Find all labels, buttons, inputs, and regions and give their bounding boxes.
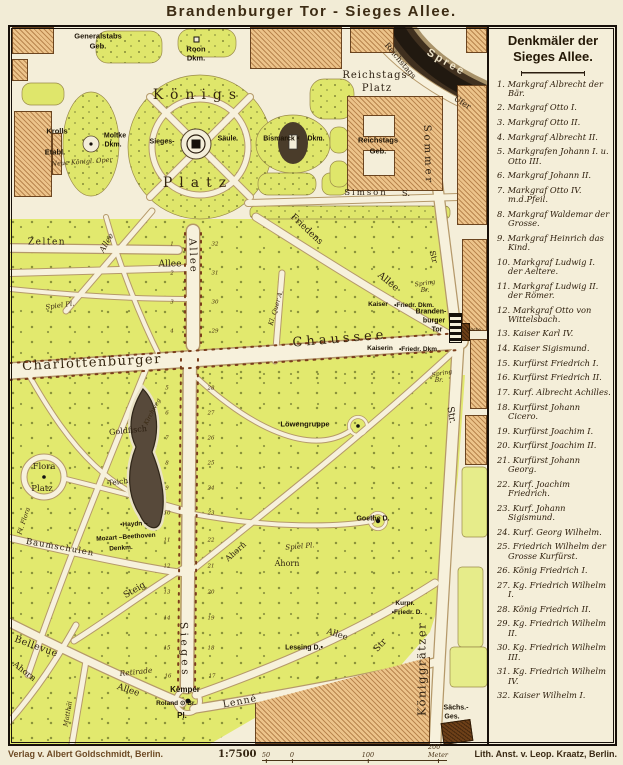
legend-item: 3. Markgraf Otto II. — [497, 118, 611, 127]
legend-panel: Denkmäler der Sieges Allee. 1. Markgraf … — [489, 27, 615, 744]
legend-divider — [521, 71, 585, 76]
map-label: Königgrätzer — [416, 622, 428, 716]
legend-item: 9. Markgraf Heinrich das Kind. — [497, 234, 611, 253]
legend-item: 4. Markgraf Albrecht II. — [497, 133, 611, 142]
publisher-credit: Verlag v. Albert Goldschmidt, Berlin. — [8, 749, 163, 759]
flora-platz-marker — [42, 475, 46, 479]
bismarck-monument-symbol — [278, 122, 308, 164]
monument-number: 8 — [165, 461, 169, 467]
legend-item: 13. Kaiser Karl IV. — [497, 329, 611, 338]
map-label: Kurpr. — [395, 601, 414, 608]
monument-number: 28 — [208, 386, 215, 392]
map-label: Platz — [31, 485, 52, 494]
monument-number: 19 — [208, 616, 215, 622]
map-label: Lessing D.• — [285, 645, 323, 652]
monument-number: 12 — [164, 564, 171, 570]
monument-number: 32 — [212, 242, 219, 248]
map-label: Reichstags — [358, 136, 398, 144]
general-staff-building — [12, 27, 54, 54]
map-label: Kaiserin — [367, 346, 393, 353]
legend-item: 7. Markgraf Otto IV. m.d.Pfeil. — [497, 186, 611, 205]
saxon-legation-building — [441, 719, 474, 744]
map-label: Pl. — [177, 712, 187, 720]
legend-item: 20. Kurfürst Joachim II. — [497, 441, 611, 450]
legend-item: 24. Kurf. Georg Wilhelm. — [497, 528, 611, 537]
monument-number: 11 — [164, 538, 171, 544]
general-staff-annex — [12, 59, 28, 81]
map-label: Sächs.- — [444, 705, 469, 712]
monument-number: 4 — [170, 329, 174, 335]
map-label: Moltke — [104, 133, 126, 140]
monument-number: 14 — [164, 616, 171, 622]
map-label: Allee — [159, 261, 182, 270]
legend-item: 12. Markgraf Otto von Wittelsbach. — [497, 306, 611, 325]
north-block-west — [250, 27, 342, 69]
monument-number: 7 — [165, 436, 169, 442]
map-label: Sieges — [178, 622, 190, 678]
map-label: × — [296, 136, 300, 142]
monument-number: 27 — [208, 411, 215, 417]
victory-column-symbol — [181, 129, 211, 159]
legend-item: 21. Kurfürst Johann Georg. — [497, 456, 611, 475]
legend-item: 1. Markgraf Albrecht der Bär. — [497, 80, 611, 99]
map-label: Löwengruppe — [280, 420, 329, 428]
map-label: Königs — [153, 88, 243, 102]
map-label: Sieges- — [150, 139, 175, 146]
map-label: Etabl. — [45, 148, 65, 156]
monument-number: 23 — [208, 511, 215, 517]
east-bank-block-2 — [462, 239, 487, 331]
map-footer: Verlag v. Albert Goldschmidt, Berlin. 1:… — [0, 745, 623, 765]
monument-number: 16 — [165, 674, 172, 680]
map-label: Platz — [163, 176, 233, 190]
monument-number: 10 — [164, 511, 171, 517]
monument-number: 6 — [165, 411, 169, 417]
legend-item: 14. Kaiser Sigismund. — [497, 344, 611, 353]
scale-tick: 50 — [262, 751, 270, 759]
monument-number: 25 — [208, 461, 215, 467]
east-block-south — [465, 415, 487, 465]
map-label: Simson — [344, 189, 388, 198]
legend-title: Denkmäler der Sieges Allee. — [495, 33, 611, 66]
legend-item: 32. Kaiser Wilhelm I. — [497, 691, 611, 700]
legend-item: 23. Kurf. Johann Sigismund. — [497, 504, 611, 523]
legend-item: 15. Kurfürst Friedrich I. — [497, 359, 611, 368]
monument-number: 30 — [212, 300, 219, 306]
map-label: Generalstabs — [74, 32, 122, 40]
monument-number: 17 — [209, 674, 216, 680]
map-label: Platz — [362, 84, 392, 94]
east-gate-block — [470, 339, 487, 409]
map-label: Krolls — [46, 127, 67, 135]
map-label: Bismarck — [263, 136, 295, 143]
map-label: Säule — [218, 136, 237, 143]
map-title: Brandenburger Tor - Sieges Allee. — [0, 3, 623, 20]
scale-bar: 500100200 Meter — [262, 749, 447, 761]
map-label: Geb. — [370, 147, 387, 155]
legend-item: 25. Friedrich Wilhelm der Grosse Kurfürs… — [497, 542, 611, 561]
map-label: Allee — [186, 238, 197, 274]
map-canvas: GeneralstabsGeb.RoonDkm.KönigsPlatzKroll… — [10, 27, 489, 744]
map-label: Zelten — [28, 239, 66, 248]
legend-item: 30. Kg. Friedrich Wilhelm III. — [497, 643, 611, 662]
monument-number: 21 — [208, 564, 215, 570]
map-label: S. — [402, 190, 410, 199]
legend-item: 11. Markgraf Ludwig II. der Römer. — [497, 282, 611, 301]
map-label: •Friedr. D. — [392, 610, 422, 617]
monument-number: 24 — [208, 486, 215, 492]
map-label: Kemper — [170, 686, 200, 694]
map-label: Str. — [445, 406, 457, 424]
legend-list: 1. Markgraf Albrecht der Bär.2. Markgraf… — [495, 80, 611, 701]
monument-number: 20 — [208, 590, 215, 596]
map-label: Dkm. — [187, 54, 205, 62]
map-label: Kaiser — [368, 302, 388, 309]
monument-number: 2 — [170, 271, 174, 277]
map-label: Dkm. — [307, 136, 324, 143]
monument-number: 31 — [212, 271, 219, 277]
map-label: Roland ⊙ Br. — [156, 701, 196, 708]
reichstag-courtyard-north — [363, 115, 395, 137]
map-label: Br. — [435, 378, 444, 384]
monument-number: 9 — [165, 486, 169, 492]
lion-group-marker — [356, 424, 360, 428]
legend-item: 5. Markgrafen Johann I. u. Otto III. — [497, 147, 611, 166]
legend-item: 6. Markgraf Johann II. — [497, 171, 611, 180]
legend-item: 8. Markgraf Waldemar der Grosse. — [497, 210, 611, 229]
monument-number: 29 — [212, 329, 219, 335]
monument-number: 18 — [208, 646, 215, 652]
legend-item: 28. König Friedrich II. — [497, 605, 611, 614]
brandenburg-gate-symbol — [449, 313, 462, 343]
map-label: Ahorn — [275, 560, 300, 568]
map-label: Br. — [421, 288, 430, 294]
map-label: Wache — [467, 328, 481, 333]
scale-tick: 0 — [290, 751, 294, 759]
monument-number: 5 — [165, 386, 169, 392]
lithographer-credit: Lith. Anst. v. Leop. Kraatz, Berlin. — [474, 749, 617, 759]
moltke-monument-symbol — [83, 136, 99, 152]
map-label: Dkm. — [104, 142, 121, 149]
map-label: Reichstags — [342, 71, 407, 81]
legend-item: 17. Kurf. Albrecht Achilles. — [497, 388, 611, 397]
map-label: Ges. — [444, 714, 459, 721]
roon-monument-marker — [194, 37, 199, 42]
map-label: Tor — [432, 327, 443, 334]
map-label: Goethe D. — [356, 516, 389, 523]
monument-number: 26 — [208, 436, 215, 442]
map-label: •Friedr. Dkm — [399, 347, 437, 354]
northeast-corner-block — [466, 27, 487, 53]
scale-tick: 100 — [362, 751, 374, 759]
legend-item: 29. Kg. Friedrich Wilhelm II. — [497, 619, 611, 638]
legend-item: 27. Kg. Friedrich Wilhelm I. — [497, 581, 611, 600]
legend-item: 16. Kurfürst Friedrich II. — [497, 373, 611, 382]
map-frame: GeneralstabsGeb.RoonDkm.KönigsPlatzKroll… — [8, 25, 617, 746]
legend-item: 18. Kurfürst Johann Cicero. — [497, 403, 611, 422]
legend-item: 10. Markgraf Ludwig I. der Aeltere. — [497, 258, 611, 277]
legend-item: 31. Kg. Friedrich Wilhelm IV. — [497, 667, 611, 686]
map-label: Geb. — [90, 42, 107, 50]
map-label: Sommer — [421, 125, 433, 186]
scale-tick: 200 Meter — [428, 743, 448, 759]
monument-number: 22 — [208, 538, 215, 544]
goldfish-pond — [130, 389, 164, 528]
monument-number: 1 — [170, 242, 174, 248]
monument-number: 13 — [164, 590, 171, 596]
monument-number: 15 — [164, 646, 171, 652]
legend-item: 2. Markgraf Otto I. — [497, 103, 611, 112]
legend-item: 26. König Friedrich I. — [497, 566, 611, 575]
map-label: Roon — [186, 45, 205, 53]
map-label: burger — [423, 318, 445, 325]
map-label: Branden- — [416, 309, 447, 316]
map-label: Flora — [33, 463, 56, 472]
map-scale: 1:7500 — [218, 749, 256, 760]
monument-number: 3 — [170, 300, 174, 306]
legend-item: 19. Kurfürst Joachim I. — [497, 427, 611, 436]
legend-item: 22. Kurf. Joachim Friedrich. — [497, 480, 611, 499]
